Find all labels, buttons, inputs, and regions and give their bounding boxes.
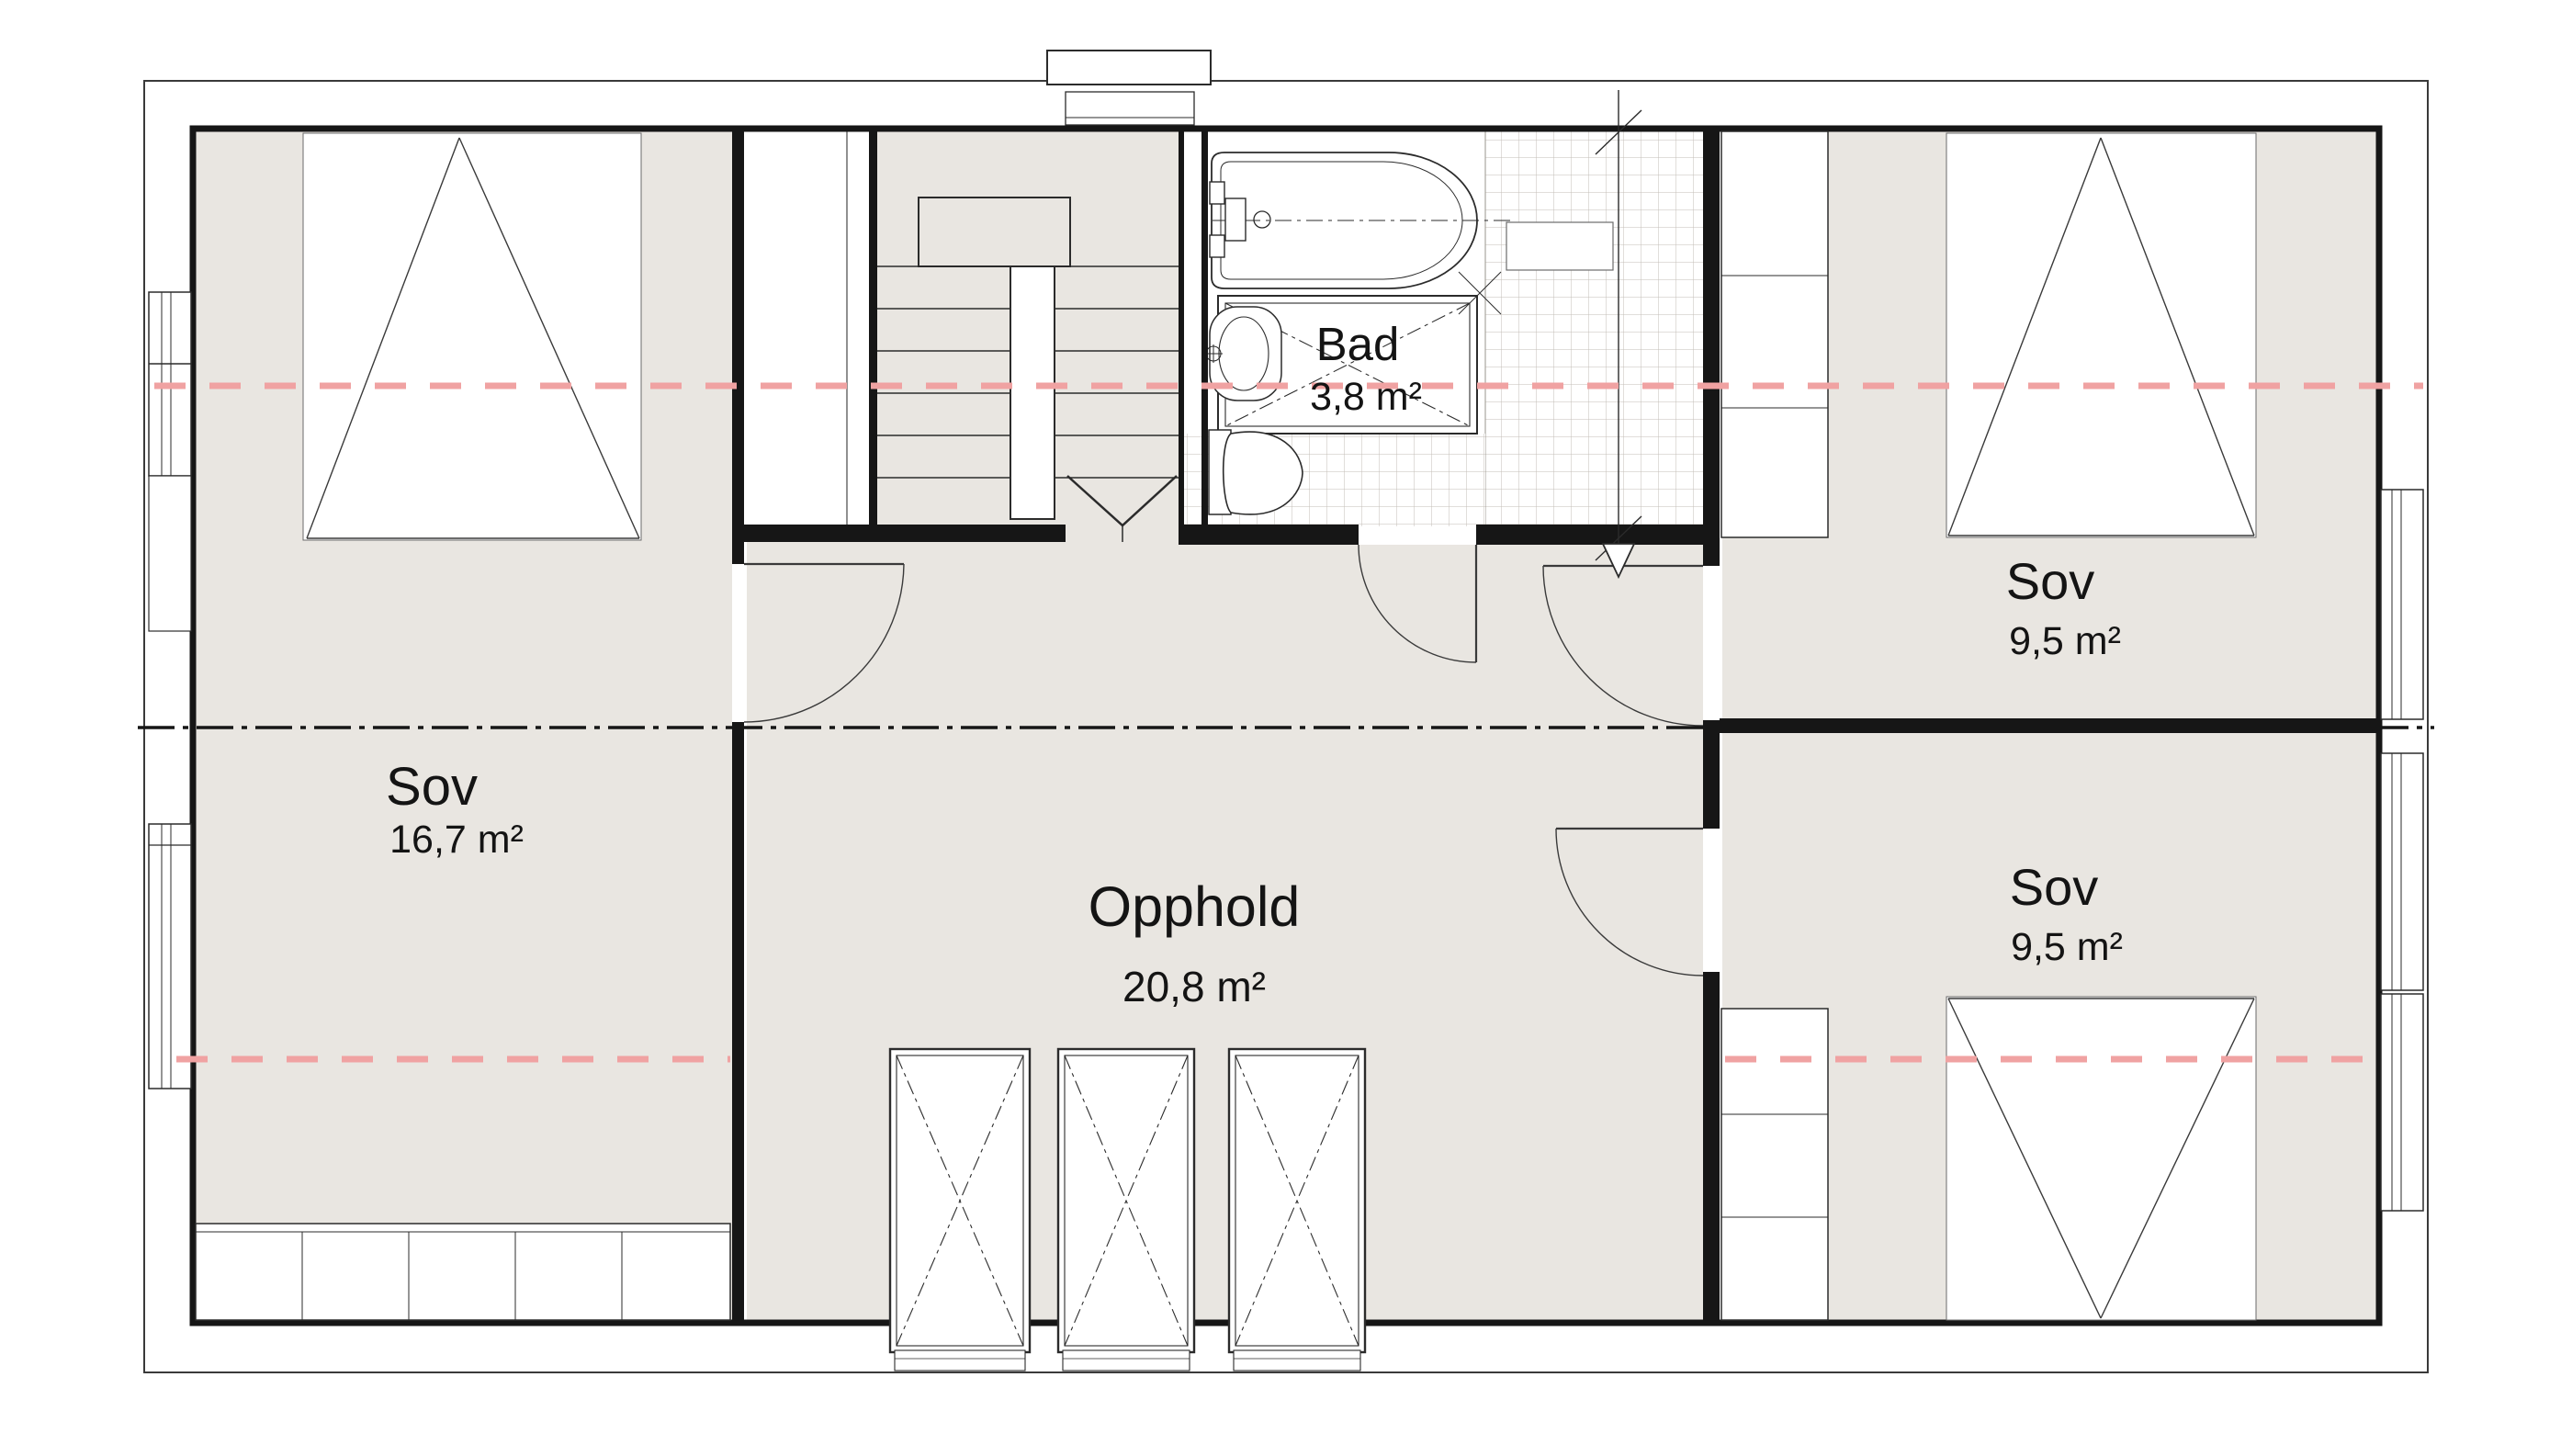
wall-bath-bottom-right	[1476, 525, 1705, 545]
floor-plan-drawing: Sov 16,7 m² Opphold 20,8 m² Bad 3,8 m² S…	[0, 0, 2572, 1456]
roof-hatch-block	[1047, 51, 1211, 125]
wall-left-bedroom-upper	[732, 129, 744, 564]
closet-bottom-right-bedroom	[1721, 1009, 1828, 1320]
dormer-window-3	[1229, 1049, 1365, 1371]
window-right-lower	[2381, 994, 2423, 1211]
wall-panel-left	[149, 476, 191, 631]
tile-strip-right-of-bath	[1485, 131, 1705, 526]
wall-right-rooms-mid	[1703, 720, 1720, 829]
wall-left-bedroom-lower	[732, 722, 744, 1323]
window-left-lower	[149, 824, 191, 1089]
wall-stair-bath-a	[1179, 129, 1184, 545]
wall-stair-left	[869, 129, 877, 526]
floor-plan-page: Sov 16,7 m² Opphold 20,8 m² Bad 3,8 m² S…	[0, 0, 2572, 1456]
closet-left-bedroom	[196, 1224, 730, 1320]
roof-window-bottom-right-bedroom	[1946, 997, 2256, 1320]
wall-stair-bath-b	[1201, 129, 1208, 545]
roof-window-top-right-bedroom	[1946, 133, 2256, 537]
stairwell-void	[747, 131, 869, 526]
label-opphold-area: 20,8 m²	[1122, 963, 1266, 1010]
label-sov-bottom-right: Sov	[2010, 858, 2099, 916]
dormer-window-1	[890, 1049, 1030, 1371]
wall-bath-bottom-left	[1179, 525, 1359, 545]
dormer-windows	[890, 1049, 1365, 1371]
stair-newel-wall	[1010, 266, 1055, 519]
wall-right-rooms-upper	[1703, 129, 1720, 566]
label-sov-top-right: Sov	[2006, 552, 2095, 610]
wall-void-bottom	[744, 525, 877, 542]
window-right-middle	[2381, 753, 2423, 990]
label-opphold: Opphold	[1089, 875, 1301, 938]
window-right-upper	[2381, 490, 2423, 719]
label-sov-top-right-area: 9,5 m²	[2009, 619, 2121, 663]
label-bad-area: 3,8 m²	[1310, 375, 1422, 419]
label-sov-left-area: 16,7 m²	[389, 818, 524, 862]
wall-between-right-bedrooms	[1720, 718, 2379, 733]
wall-stair-bottom	[877, 525, 1066, 542]
roof-window-left-bedroom	[303, 133, 641, 540]
bathtub-faucet	[1210, 182, 1224, 204]
label-bad: Bad	[1316, 318, 1400, 370]
label-sov-left: Sov	[386, 757, 478, 817]
wall-right-rooms-lower	[1703, 972, 1720, 1323]
closet-top-right-bedroom	[1721, 131, 1828, 537]
label-sov-bottom-right-area: 9,5 m²	[2011, 925, 2123, 969]
dormer-window-2	[1058, 1049, 1194, 1371]
tile-niche	[1506, 222, 1613, 270]
